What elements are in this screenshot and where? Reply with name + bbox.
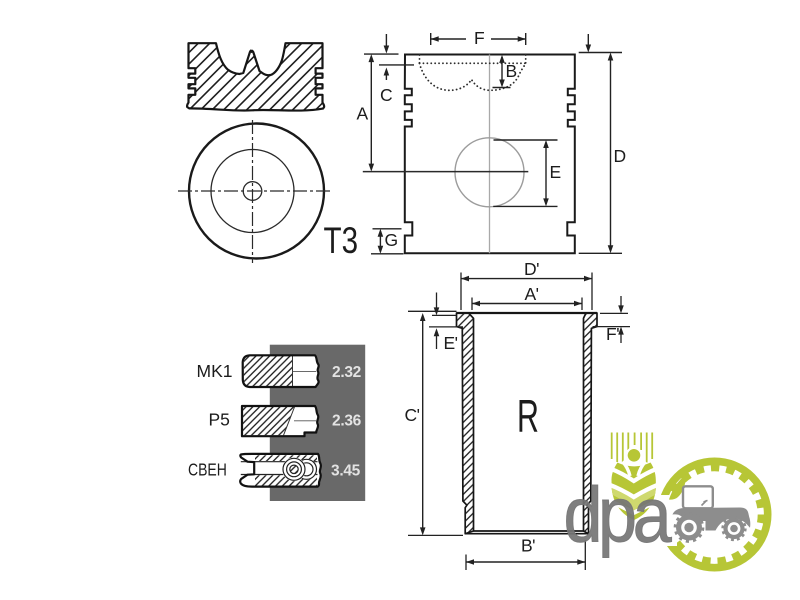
- svg-text:G: G: [385, 230, 398, 250]
- svg-text:A: A: [357, 104, 369, 124]
- svg-text:T3: T3: [324, 221, 359, 262]
- svg-text:dpa: dpa: [564, 471, 673, 558]
- svg-text:C: C: [380, 85, 392, 105]
- svg-text:F': F': [606, 324, 619, 344]
- svg-text:B': B': [521, 536, 535, 556]
- svg-text:R: R: [517, 392, 539, 443]
- svg-text:2.32: 2.32: [332, 364, 361, 381]
- svg-text:D': D': [524, 259, 539, 279]
- svg-text:A': A': [525, 284, 539, 304]
- svg-text:C': C': [405, 405, 420, 425]
- svg-text:MK1: MK1: [197, 361, 233, 381]
- svg-text:P5: P5: [209, 410, 230, 430]
- svg-text:CBEH: CBEH: [188, 461, 227, 480]
- svg-text:D: D: [614, 146, 626, 166]
- svg-text:E': E': [444, 333, 458, 353]
- svg-text:F: F: [474, 28, 484, 48]
- svg-text:2.36: 2.36: [332, 413, 362, 430]
- svg-text:E: E: [550, 162, 561, 182]
- svg-text:B: B: [506, 61, 517, 81]
- svg-text:3.45: 3.45: [331, 463, 361, 480]
